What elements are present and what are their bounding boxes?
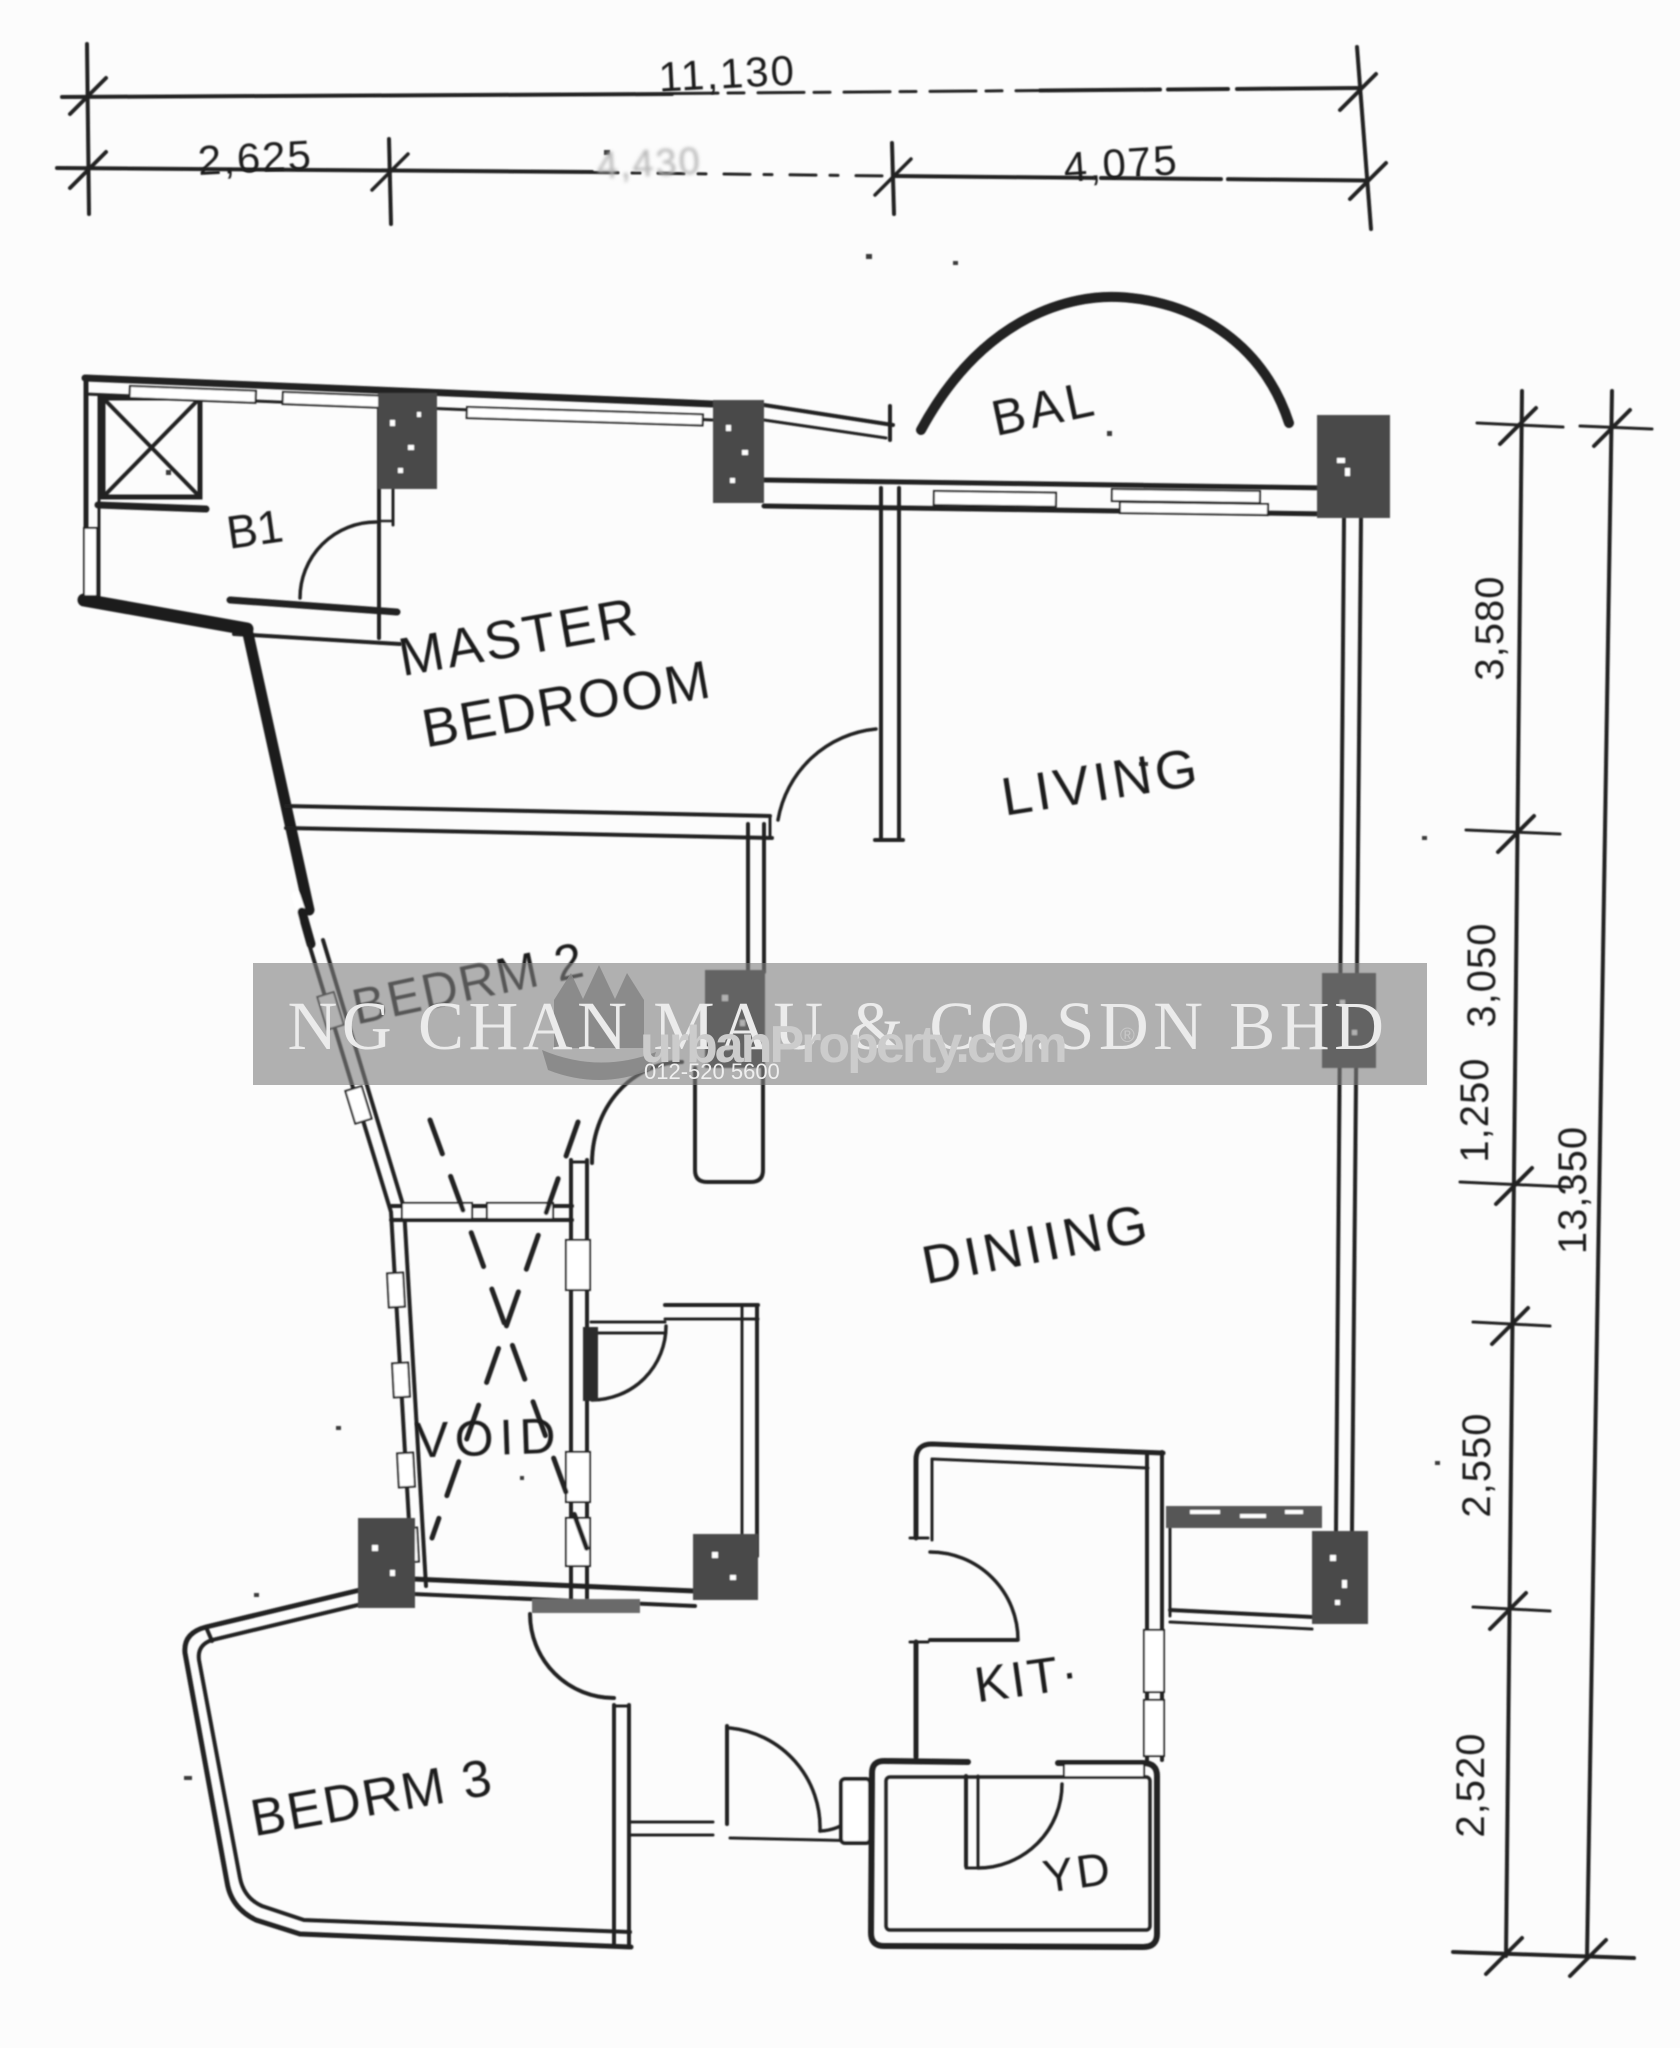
svg-text:BAL: BAL [987,370,1103,447]
svg-text:LIVING: LIVING [997,737,1205,828]
svg-text:KIT·: KIT· [971,1643,1084,1713]
svg-text:3,050: 3,050 [1460,922,1504,1027]
svg-text:2,625: 2,625 [197,131,314,184]
svg-text:3,580: 3,580 [1468,575,1512,680]
svg-text:11,130: 11,130 [657,46,797,100]
svg-text:®: ® [1120,1025,1135,1047]
svg-text:1,250: 1,250 [1453,1057,1497,1162]
svg-text:VOID: VOID [414,1407,562,1468]
svg-text:4,075: 4,075 [1062,136,1180,191]
svg-text:2,520: 2,520 [1449,1732,1493,1837]
svg-text:B1: B1 [223,499,286,558]
svg-text:YD: YD [1040,1842,1116,1903]
svg-text:13,350: 13,350 [1551,1126,1595,1254]
svg-text:012-520 5600: 012-520 5600 [644,1059,780,1084]
svg-text:2,550: 2,550 [1455,1412,1499,1517]
svg-text:4,430: 4,430 [596,140,703,187]
svg-text:DINIING: DINIING [917,1193,1156,1296]
svg-text:BEDRM 3: BEDRM 3 [246,1748,498,1848]
